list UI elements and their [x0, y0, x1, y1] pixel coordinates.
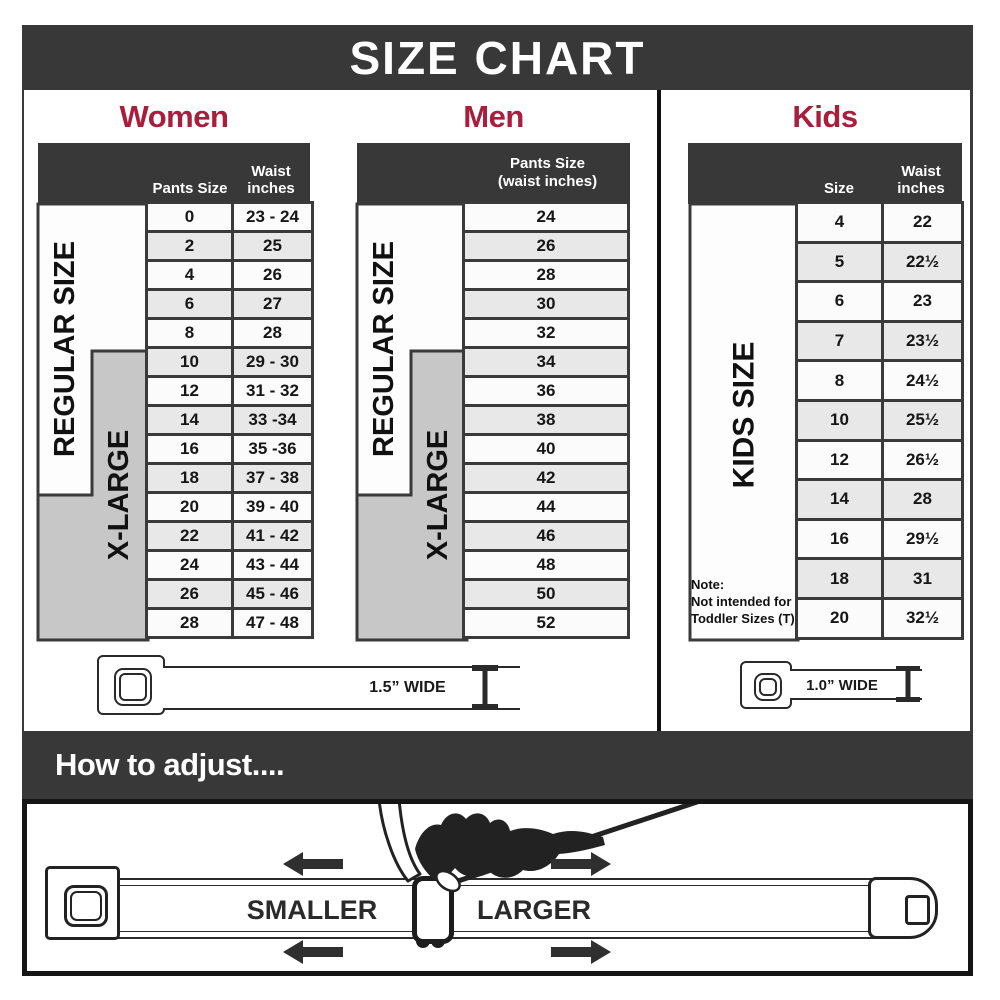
table-row: 26 [464, 232, 629, 261]
pants-size-cell: 16 [147, 435, 233, 464]
table-row: 42 [464, 464, 629, 493]
pulled-strap-line [455, 804, 703, 882]
waist-cell: 37 - 38 [233, 464, 313, 493]
women-header-spacer [38, 143, 148, 204]
pants-size-cell: 36 [464, 377, 629, 406]
table-row: 40 [464, 435, 629, 464]
table-row: 32 [464, 319, 629, 348]
waist-cell: 29 - 30 [233, 348, 313, 377]
pants-size-cell: 18 [147, 464, 233, 493]
table-row: 2847 - 48 [147, 609, 313, 638]
page-title: SIZE CHART [350, 31, 646, 85]
men-regular-label: REGULAR SIZE [368, 241, 400, 457]
waist-cell: 23 [883, 282, 963, 322]
pants-size-cell: 8 [147, 319, 233, 348]
pants-size-cell: 34 [464, 348, 629, 377]
waist-cell: 28 [233, 319, 313, 348]
women-size-table: 023 - 242254266278281029 - 301231 - 3214… [145, 201, 314, 639]
pants-size-cell: 28 [147, 609, 233, 638]
men-col-pants-size: Pants Size (waist inches) [465, 143, 630, 204]
waist-cell: 45 - 46 [233, 580, 313, 609]
table-row: 2032½ [797, 598, 963, 638]
pants-size-cell: 22 [147, 522, 233, 551]
waist-cell: 25 [233, 232, 313, 261]
pants-size-cell: 12 [147, 377, 233, 406]
waist-cell: 33 -34 [233, 406, 313, 435]
table-row: 1029 - 30 [147, 348, 313, 377]
hand-silhouette-icon [415, 813, 605, 884]
waist-cell: 41 - 42 [233, 522, 313, 551]
kids-table-header: Size Waist inches [688, 143, 962, 204]
waist-cell: 39 - 40 [233, 493, 313, 522]
women-heading: Women [38, 99, 310, 135]
men-xlarge-label: X-LARGE [422, 430, 454, 561]
kids-header-spacer [688, 143, 798, 204]
adjust-belt-buckle-icon [45, 866, 120, 940]
table-row: 2443 - 44 [147, 551, 313, 580]
waist-cell: 47 - 48 [233, 609, 313, 638]
kids-belt-buckle-icon [740, 661, 792, 709]
kids-col-size: Size [798, 143, 880, 204]
pants-size-cell: 4 [147, 261, 233, 290]
title-bar: SIZE CHART [22, 25, 973, 90]
table-row: 1433 -34 [147, 406, 313, 435]
adult-width-marker-icon [470, 662, 500, 714]
pants-size-cell: 30 [464, 290, 629, 319]
kids-size-table: 422522½623723½824½1025½1226½14281629½183… [795, 201, 964, 640]
pants-size-cell: 14 [147, 406, 233, 435]
how-to-adjust-bar: How to adjust.... [22, 731, 973, 799]
size-cell: 10 [797, 400, 883, 440]
table-row: 2241 - 42 [147, 522, 313, 551]
waist-cell: 23 - 24 [233, 203, 313, 232]
size-cell: 20 [797, 598, 883, 638]
table-row: 34 [464, 348, 629, 377]
adult-buckle-inner [114, 668, 152, 706]
waist-cell: 22 [883, 203, 963, 243]
waist-cell: 31 - 32 [233, 377, 313, 406]
kids-col-waist: Waist inches [880, 143, 962, 204]
size-cell: 5 [797, 242, 883, 282]
pants-size-cell: 28 [464, 261, 629, 290]
waist-cell: 32½ [883, 598, 963, 638]
pants-size-cell: 24 [464, 203, 629, 232]
waist-cell: 25½ [883, 400, 963, 440]
adjust-buckle-inner-line [70, 891, 102, 921]
women-size-range-labels: REGULAR SIZE X-LARGE [33, 199, 153, 645]
table-row: 723½ [797, 321, 963, 361]
men-table-header: Pants Size (waist inches) [357, 143, 630, 204]
waist-cell: 28 [883, 480, 963, 520]
waist-cell: 29½ [883, 519, 963, 559]
kids-heading: Kids [688, 99, 962, 135]
table-row: 44 [464, 493, 629, 522]
pants-size-cell: 40 [464, 435, 629, 464]
pants-size-cell: 46 [464, 522, 629, 551]
women-xlarge-label: X-LARGE [103, 430, 135, 561]
table-row: 30 [464, 290, 629, 319]
table-row: 623 [797, 282, 963, 322]
pants-size-cell: 26 [147, 580, 233, 609]
table-row: 1428 [797, 480, 963, 520]
table-row: 1635 -36 [147, 435, 313, 464]
section-divider [657, 90, 661, 731]
table-row: 36 [464, 377, 629, 406]
pants-size-cell: 24 [147, 551, 233, 580]
waist-cell: 35 -36 [233, 435, 313, 464]
size-chart-page: SIZE CHART Women Men Kids Pants Size Wai… [0, 0, 1000, 1000]
waist-cell: 23½ [883, 321, 963, 361]
arrow-right-icon [551, 852, 611, 876]
table-row: 828 [147, 319, 313, 348]
table-row: 24 [464, 203, 629, 232]
arrow-right-icon [551, 940, 611, 964]
arrow-left-icon [283, 940, 343, 964]
smaller-label: SMALLER [202, 895, 422, 926]
pants-size-cell: 26 [464, 232, 629, 261]
table-row: 2645 - 46 [147, 580, 313, 609]
waist-cell: 26½ [883, 440, 963, 480]
men-header-spacer [357, 143, 465, 204]
table-row: 426 [147, 261, 313, 290]
kids-buckle-inner [754, 673, 782, 701]
table-row: 1231 - 32 [147, 377, 313, 406]
adult-buckle-inner-line [119, 673, 147, 701]
women-table-header: Pants Size Waist inches [38, 143, 310, 204]
table-row: 1831 [797, 559, 963, 599]
men-size-table: 242628303234363840424446485052 [462, 201, 630, 639]
kids-belt-width-label: 1.0” WIDE [797, 677, 887, 694]
adjust-buckle-inner [64, 885, 108, 927]
men-heading: Men [357, 99, 630, 135]
pants-size-cell: 10 [147, 348, 233, 377]
kids-size-label: KIDS SIZE [728, 342, 761, 489]
kids-buckle-inner-line [759, 678, 777, 696]
size-cell: 12 [797, 440, 883, 480]
waist-cell: 22½ [883, 242, 963, 282]
table-row: 422 [797, 203, 963, 243]
size-cell: 4 [797, 203, 883, 243]
adult-belt-buckle-icon [97, 655, 165, 715]
kids-note: Note: Not intended for Toddler Sizes (T) [691, 577, 797, 628]
adult-belt-width-label: 1.5” WIDE [345, 679, 470, 697]
waist-cell: 43 - 44 [233, 551, 313, 580]
women-col-waist: Waist inches [232, 143, 310, 204]
pants-size-cell: 44 [464, 493, 629, 522]
size-cell: 8 [797, 361, 883, 401]
table-row: 38 [464, 406, 629, 435]
pants-size-cell: 0 [147, 203, 233, 232]
adjust-illustration-box: SMALLER LARGER [22, 799, 973, 976]
size-cell: 18 [797, 559, 883, 599]
table-row: 2039 - 40 [147, 493, 313, 522]
size-cell: 14 [797, 480, 883, 520]
waist-cell: 24½ [883, 361, 963, 401]
men-size-range-labels: REGULAR SIZE X-LARGE [352, 199, 472, 645]
pants-size-cell: 2 [147, 232, 233, 261]
table-row: 1025½ [797, 400, 963, 440]
size-cell: 16 [797, 519, 883, 559]
table-row: 824½ [797, 361, 963, 401]
table-row: 28 [464, 261, 629, 290]
table-row: 48 [464, 551, 629, 580]
waist-cell: 31 [883, 559, 963, 599]
table-row: 1629½ [797, 519, 963, 559]
larger-label: LARGER [424, 895, 644, 926]
pants-size-cell: 42 [464, 464, 629, 493]
pants-size-cell: 6 [147, 290, 233, 319]
table-row: 1226½ [797, 440, 963, 480]
table-row: 522½ [797, 242, 963, 282]
table-row: 1837 - 38 [147, 464, 313, 493]
pants-size-cell: 50 [464, 580, 629, 609]
belt-tongue-hole [905, 895, 930, 925]
table-row: 52 [464, 609, 629, 638]
table-row: 627 [147, 290, 313, 319]
waist-cell: 27 [233, 290, 313, 319]
belt-tongue-icon [868, 877, 938, 939]
table-row: 46 [464, 522, 629, 551]
how-to-adjust-heading: How to adjust.... [22, 747, 284, 783]
pants-size-cell: 38 [464, 406, 629, 435]
arrow-left-icon [283, 852, 343, 876]
size-cell: 7 [797, 321, 883, 361]
kids-width-marker-icon [894, 664, 922, 706]
table-row: 50 [464, 580, 629, 609]
table-row: 225 [147, 232, 313, 261]
finger-icon [379, 804, 420, 881]
waist-cell: 26 [233, 261, 313, 290]
women-col-pants-size: Pants Size [148, 143, 232, 204]
size-cell: 6 [797, 282, 883, 322]
pants-size-cell: 20 [147, 493, 233, 522]
pants-size-cell: 32 [464, 319, 629, 348]
pants-size-cell: 52 [464, 609, 629, 638]
table-row: 023 - 24 [147, 203, 313, 232]
pants-size-cell: 48 [464, 551, 629, 580]
women-regular-label: REGULAR SIZE [49, 241, 81, 457]
